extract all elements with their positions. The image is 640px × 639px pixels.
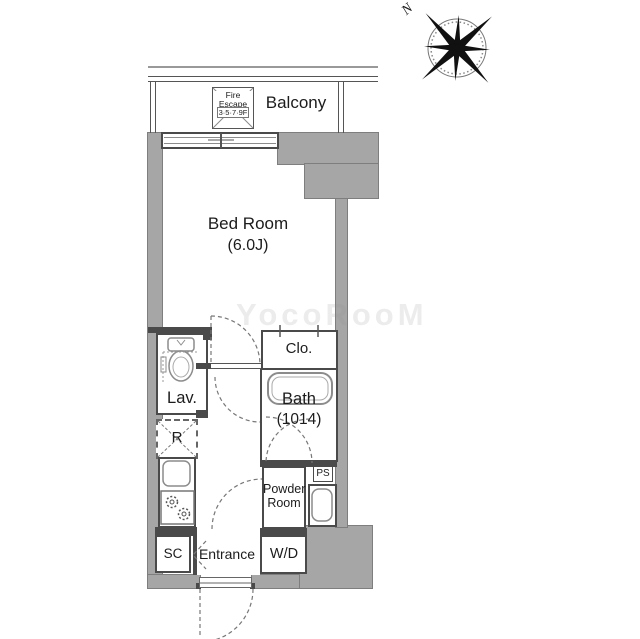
property-line [148,66,378,68]
wall-powder-wd [260,528,307,536]
entrance-door-arc [200,589,253,639]
corridor-cross-track [211,363,261,369]
entrance-sill [199,577,252,588]
kitchen-counter [158,457,196,528]
powder-line2: Room [263,496,305,510]
refrigerator-label: R [166,429,188,446]
fire-escape-line3: 3·5·7·9F [213,109,253,117]
wall-top-right-b [305,164,378,198]
wall-corridor-cross [196,363,211,369]
wall-kitchen-sc [155,527,197,536]
wall-top-right-a [278,133,378,164]
pipe-space-label: PS [313,468,333,480]
fire-escape-label: Fire Escape 3·5·7·9F [213,91,253,117]
basin-box [308,484,337,527]
wall-bottom-right-block [300,526,372,588]
floor-plan: N Balcony Fire Escape 3·5·7·9F Bed Room … [0,0,640,639]
wall-nub-lav-top [203,331,212,340]
bath-size: (1014) [262,411,336,429]
wall-nub-lav-bottom [196,410,208,418]
entrance-label: Entrance [194,546,260,562]
lavatory-label: Lav. [160,389,204,408]
shoe-closet-label: SC [157,546,189,562]
wall-bottom-center [252,575,302,588]
balcony-right-rail [338,81,344,133]
washer-dryer-label: W/D [263,546,305,563]
balcony-label: Balcony [256,93,336,113]
powder-line1: Powder [263,482,305,496]
bedroom-name: Bed Room [178,214,318,234]
bath-label: Bath (1014) [262,390,336,429]
compass-north-label: N [396,0,420,22]
watermark: YocoRooM [236,297,428,333]
balcony-left-rail [150,81,156,133]
wall-bath-powder [260,461,337,467]
bedroom-label: Bed Room (6.0J) [178,214,318,255]
powder-room-label: Powder Room [263,482,305,511]
closet-label: Clo. [266,340,332,357]
bedroom-size: (6.0J) [178,237,318,255]
bath-name: Bath [262,390,336,409]
wall-bottom-left [148,575,200,588]
